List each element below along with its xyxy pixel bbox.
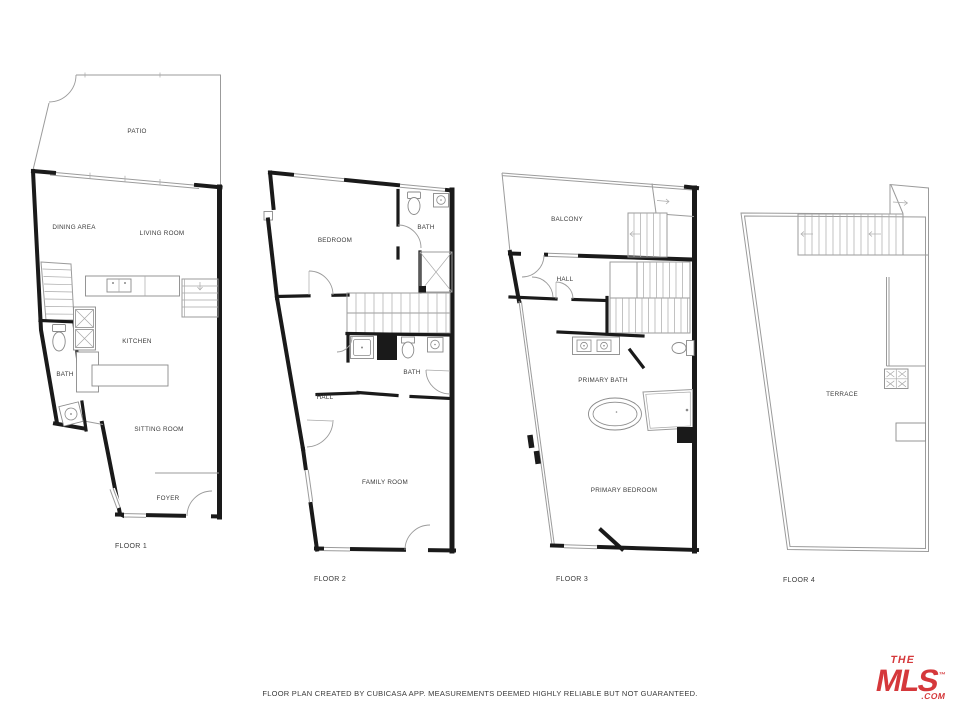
bathtub	[589, 398, 642, 430]
hall3-label: HALL	[557, 276, 574, 283]
mid-bath-door-arc	[426, 370, 450, 394]
floor4-outer-walls	[741, 185, 929, 552]
floor4-stairs	[798, 214, 929, 255]
shower	[643, 390, 693, 431]
foyer-label: FOYER	[157, 495, 180, 502]
floor1-foyer-door	[186, 491, 212, 516]
family-entry-door-arc	[307, 420, 333, 447]
patio-label: PATIO	[127, 128, 146, 135]
floor3-balcony-stairs	[628, 184, 694, 258]
balcony-door-arc	[522, 255, 544, 277]
floor1-toilet	[53, 325, 66, 352]
bath-mid-label: BATH	[403, 369, 421, 376]
toilet-bowl	[672, 343, 686, 354]
sitting-room-label: SITTING ROOM	[134, 426, 183, 433]
floor4-fixtures	[885, 277, 926, 441]
living-room-label: LIVING ROOM	[140, 230, 185, 237]
dining-area-label: DINING AREA	[52, 224, 96, 231]
kitchen-peninsula	[92, 365, 168, 386]
hall-entry-door-arc	[532, 277, 553, 297]
patio-door-arc	[49, 75, 76, 102]
hall-door-arc	[556, 282, 573, 299]
floor2-label: FLOOR 2	[314, 576, 346, 583]
bath-upper-label: BATH	[417, 224, 435, 231]
floor1-stairs	[41, 262, 74, 320]
primary-bedroom-label: PRIMARY BEDROOM	[591, 487, 658, 494]
floor2-upper-bath-fixtures	[408, 192, 449, 215]
toilet-tank	[687, 341, 695, 356]
floor-3-plan: BALCONY HALL PRIMARY BATH PRIMARY BEDROO…	[502, 173, 697, 583]
stove-counter	[74, 307, 96, 350]
bath1-label: BATH	[56, 371, 74, 378]
disclaimer-text: FLOOR PLAN CREATED BY CUBICASA APP. MEAS…	[0, 689, 960, 698]
floor-1-plan: PATIO DINING AREA LIVING ROOM KITCHEN BA…	[33, 73, 221, 551]
counter	[896, 423, 926, 441]
floor2-shaft	[419, 252, 452, 293]
family-room-label: FAMILY ROOM	[362, 479, 408, 486]
floor1-stairs-right	[182, 279, 218, 317]
floor1-kitchen-counters	[74, 276, 180, 392]
bedroom-door-arc	[309, 271, 333, 295]
floor-4-plan: TERRACE FLOOR 4	[741, 185, 929, 585]
balcony-label: BALCONY	[551, 216, 583, 223]
floor3-label: FLOOR 3	[556, 576, 588, 583]
floor2-mid-bath	[317, 335, 450, 399]
themls-logo: THE MLS™ .COM	[873, 655, 954, 700]
logo-trademark: ™	[938, 672, 946, 679]
floor4-label: FLOOR 4	[783, 577, 815, 584]
primary-bath-label: PRIMARY BATH	[578, 377, 628, 384]
floor-plan-drawing: PATIO DINING AREA LIVING ROOM KITCHEN BA…	[0, 0, 960, 720]
floor-2-plan: BEDROOM BATH HALL BATH FAMILY ROOM FLOOR…	[264, 173, 454, 584]
kitchen-label: KITCHEN	[122, 338, 152, 345]
floor3-hall-stairs	[510, 262, 690, 336]
floor3-outer-walls	[502, 173, 697, 551]
shower-room-door-arc	[337, 337, 352, 352]
vestibule-wall	[891, 185, 903, 214]
bedroom-label: BEDROOM	[318, 237, 352, 244]
hall2-label: HALL	[317, 394, 334, 401]
floor-plan-page: { "floors": { "floor1": { "label": "FLOO…	[0, 0, 960, 720]
floor1-window-wall	[33, 171, 221, 189]
floor3-balcony-wall	[510, 253, 694, 297]
floor2-stairs	[347, 293, 450, 335]
floor1-label: FLOOR 1	[115, 543, 147, 550]
floor1-bath-sink	[59, 402, 83, 426]
terrace-label: TERRACE	[826, 391, 858, 398]
floor3-primary-bath	[573, 337, 698, 443]
